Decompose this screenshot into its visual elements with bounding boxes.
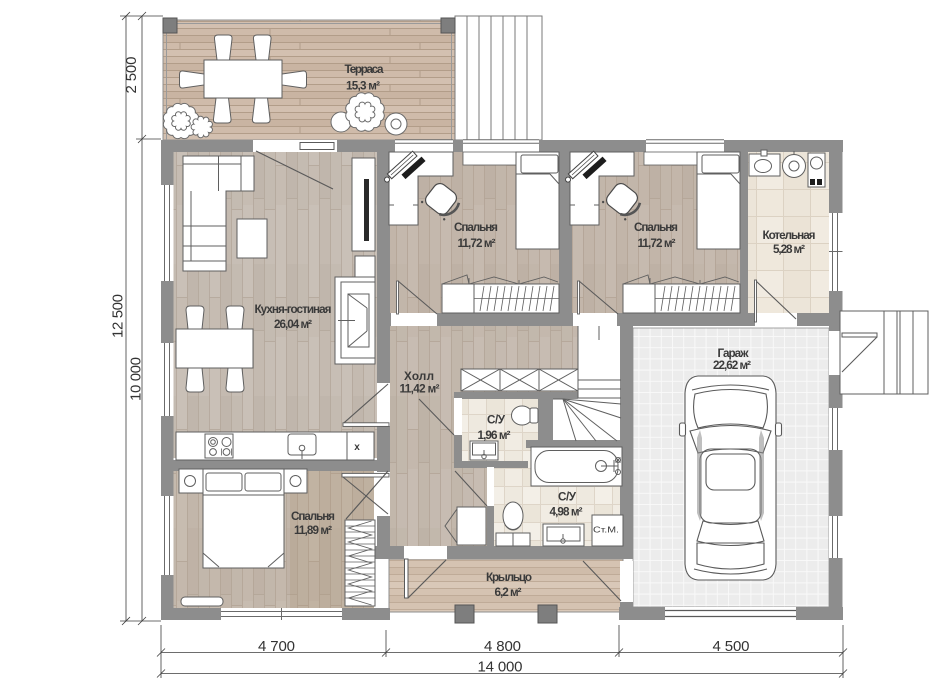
svg-text:11,72 м²: 11,72 м² xyxy=(638,237,676,250)
svg-text:Холл: Холл xyxy=(404,370,434,383)
svg-text:14 000: 14 000 xyxy=(478,659,523,676)
svg-text:Спальня: Спальня xyxy=(291,510,335,523)
svg-text:11,42 м²: 11,42 м² xyxy=(400,383,440,396)
svg-text:11,89 м²: 11,89 м² xyxy=(294,524,332,537)
svg-text:11,72 м²: 11,72 м² xyxy=(458,237,496,250)
svg-text:2 500: 2 500 xyxy=(123,57,140,94)
svg-text:Кухня-гостиная: Кухня-гостиная xyxy=(255,303,332,316)
svg-text:26,04 м²: 26,04 м² xyxy=(274,318,312,331)
svg-text:Ст.М.: Ст.М. xyxy=(593,526,619,535)
svg-text:Котельная: Котельная xyxy=(763,229,816,242)
svg-text:12 500: 12 500 xyxy=(110,294,127,338)
svg-text:15,3 м²: 15,3 м² xyxy=(346,80,380,93)
svg-text:4 700: 4 700 xyxy=(258,638,295,655)
svg-text:4 800: 4 800 xyxy=(484,638,521,655)
svg-text:4 500: 4 500 xyxy=(713,638,750,655)
svg-text:22,62 м²: 22,62 м² xyxy=(713,359,751,372)
svg-text:Спальня: Спальня xyxy=(454,221,498,234)
svg-text:Крыльцо: Крыльцо xyxy=(486,571,532,584)
svg-text:Терраса: Терраса xyxy=(345,63,384,76)
svg-text:С/У: С/У xyxy=(558,491,577,504)
svg-text:5,28 м²: 5,28 м² xyxy=(773,243,805,256)
svg-text:6,2 м²: 6,2 м² xyxy=(495,586,522,599)
svg-text:1,96 м²: 1,96 м² xyxy=(478,429,511,442)
svg-text:С/У: С/У xyxy=(487,414,506,427)
svg-text:4,98 м²: 4,98 м² xyxy=(550,506,583,519)
svg-text:Спальня: Спальня xyxy=(634,221,678,234)
svg-text:x: x xyxy=(354,442,360,453)
svg-text:10 000: 10 000 xyxy=(128,357,145,401)
